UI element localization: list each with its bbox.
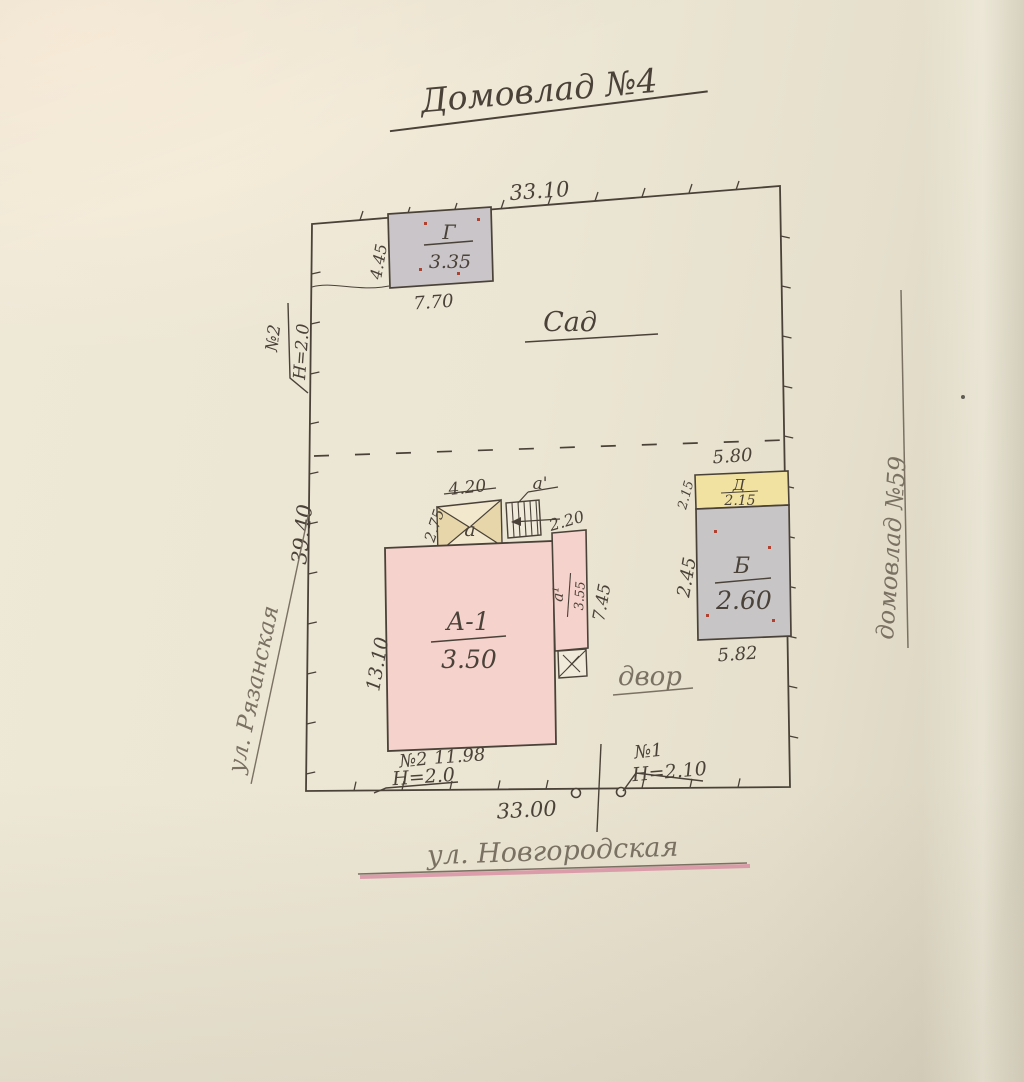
site-plan-drawing: Домовлад №4 33.10 Г 3.35 7.70 4.45 Сад №…	[0, 0, 1024, 1082]
dim-plot-bottom: 33.00	[496, 796, 557, 823]
building-g-dim-left: 4.45	[366, 242, 391, 281]
building-g-dim-bottom: 7.70	[413, 291, 454, 315]
garden-label-group: Сад	[525, 307, 658, 342]
plan-title-group: Домовлад №4	[386, 56, 709, 131]
porch-a-dim-top: 4.20	[447, 476, 488, 500]
building-ext-height: 3.55	[572, 581, 589, 611]
building-ext-letter: а¹	[549, 586, 568, 602]
scanned-plan-page: Домовлад №4 33.10 Г 3.35 7.70 4.45 Сад №…	[0, 0, 1024, 1082]
building-g-height: 3.35	[429, 251, 471, 273]
yard-label: двор	[618, 662, 682, 692]
fence-squiggle	[312, 285, 389, 288]
page-title: Домовлад №4	[417, 61, 659, 121]
yard-label-group: двор	[613, 662, 693, 695]
building-b: Б 2.60 5.82 2.45	[673, 505, 791, 666]
garden-label: Сад	[543, 307, 597, 338]
porch-a: а 4.20 2.75	[420, 476, 502, 553]
fence-left-h: Н=2.0	[290, 323, 314, 382]
street-bottom-group: ул. Новгородская	[358, 832, 750, 877]
dim-plot-left: 39.40	[287, 503, 317, 565]
dim-plot-top: 33.10	[509, 177, 571, 205]
building-d: Д 2.15 5.80 2.15	[675, 445, 789, 512]
fence-left-num: №2	[262, 323, 285, 353]
building-a1-letter: А-1	[444, 607, 489, 636]
street-left-label: ул. Рязанская	[223, 603, 284, 776]
neighbor-right-group: домовлад №59	[871, 290, 912, 648]
fence-bottom-right-flag: №1 Н=2.10	[623, 740, 708, 791]
building-a1: А-1 3.50 13.10 11.98	[362, 541, 556, 769]
building-d-dim-left: 2.15	[675, 479, 697, 512]
fence-left-flag: №2 Н=2.0	[262, 303, 314, 393]
building-ext: а¹ 3.55 7.45	[548, 530, 616, 678]
fence-br-num: №1	[632, 740, 664, 764]
building-b-height: 2.60	[715, 586, 772, 615]
building-g-letter: Г	[441, 220, 456, 244]
building-ext-dim-right: 7.45	[589, 582, 615, 623]
building-b-dim-bottom: 5.82	[717, 643, 758, 667]
porch-a-letter: а	[464, 519, 475, 541]
building-b-dim-top: 5.80	[712, 445, 753, 469]
paper-speck	[961, 395, 965, 399]
building-b-letter: Б	[733, 554, 750, 579]
building-a1-height: 3.50	[441, 645, 497, 674]
building-g: Г 3.35 7.70 4.45	[312, 207, 493, 314]
